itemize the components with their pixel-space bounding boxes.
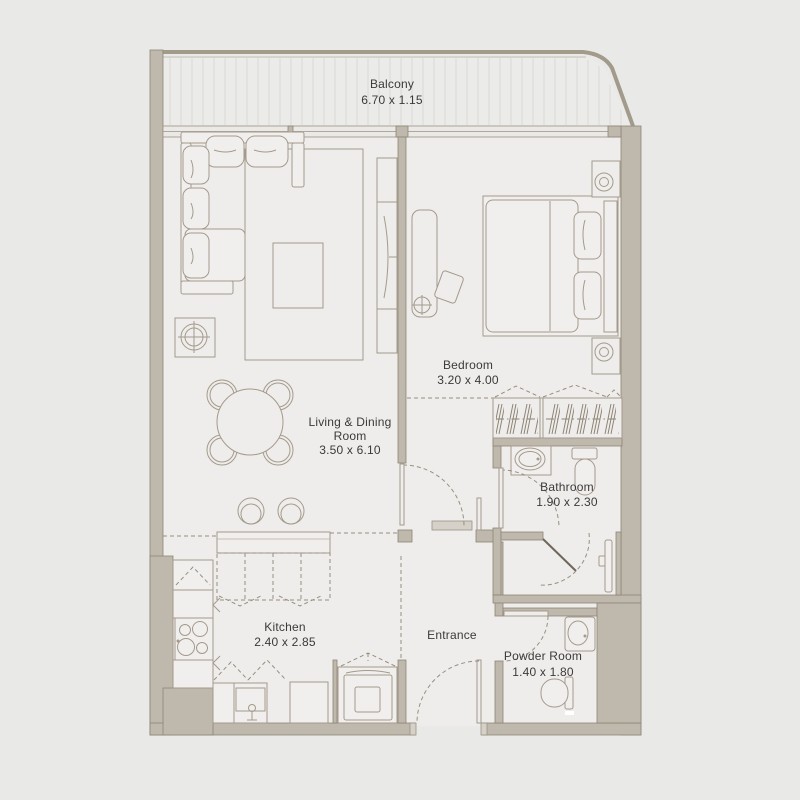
wall-bottom-right [482,723,641,735]
wardrobe-hangers-right [546,401,619,435]
powder-sink [565,617,595,651]
bathroom-dims: 1.90 x 2.30 [536,495,598,509]
wall-appliance-niche-left [333,660,337,723]
tv-console-cabinet [377,158,397,353]
corridor-door-leaf [400,464,404,525]
wall-corridor-bathroom-lower [493,528,501,595]
side-table [175,318,215,357]
bathroom-sink-drain [537,458,540,461]
living-dims: 3.50 x 6.10 [319,443,381,457]
kitchen-label: Kitchen [264,620,305,634]
floor-threshold-mark [565,711,574,715]
wall-shower-stub [501,532,543,540]
wall-corridor-entrance-left [398,530,412,542]
living-label-line2: Room [334,429,367,443]
floor-plan-drawing: Balcony 6.70 x 1.15 Bedroom 3.20 x 4.00 … [0,0,800,800]
sofa-cushion [183,188,209,229]
window-post-partition [396,126,408,137]
bed-pillow [574,212,601,259]
sofa-cushion [183,146,209,184]
kitchen-base-counter [290,682,328,723]
wall-protrusion [432,521,472,530]
powder-toilet [541,677,573,709]
coffee-table [273,243,323,308]
balcony-dims: 6.70 x 1.15 [361,93,423,107]
powder-door-leaf [504,611,548,616]
powder-sink-drain [584,635,587,638]
wardrobe-hangers-left [496,401,538,435]
bed-pillow [574,272,601,319]
entrance-label: Entrance [427,628,477,642]
living-label-line1: Living & Dining [308,415,391,429]
wall-block-right-of-powder [597,603,641,723]
shower-handle [599,556,605,566]
window-post-right [608,126,621,137]
powder-dims: 1.40 x 1.80 [512,665,574,679]
balcony-label: Balcony [370,77,414,91]
wall-bathroom-bottom [493,595,641,603]
bed-duvet [486,200,578,332]
wall-below-wardrobe [493,438,622,446]
bedroom-label: Bedroom [443,358,493,372]
wall-living-bedroom [398,137,406,463]
sofa-arm-right [292,143,304,187]
bathroom-door-leaf [499,468,503,528]
wall-kitchen-entrance-lower [398,660,406,723]
wall-kitchen-corner-block [163,688,213,735]
bathroom-label: Bathroom [540,480,594,494]
kitchen-island-counter [217,532,330,553]
wall-bathroom-right-strip [616,532,621,595]
kitchen-dims: 2.40 x 2.85 [254,635,316,649]
hall-door-leaf [477,498,481,530]
nightstand-bottom [592,338,620,374]
sofa-arm-bottom [181,281,233,294]
tv-console [377,158,397,353]
wall-entrance-powder-lower [495,661,503,723]
nightstand-top [592,161,620,197]
entry-door-leaf [477,660,481,723]
floor-plan-page: Balcony 6.70 x 1.15 Bedroom 3.20 x 4.00 … [0,0,800,800]
entry-door-post-left [410,723,416,735]
bedroom-dims: 3.20 x 4.00 [437,373,499,387]
powder-label: Powder Room [504,649,582,663]
cooktop [175,618,213,660]
entry-door-post-right [481,723,487,735]
bathroom-vanity [511,446,551,475]
sofa-cushion [183,233,209,278]
balcony-floor [163,57,630,126]
bed-headboard [604,201,617,332]
shower-panel [605,540,612,592]
cooktop-knob [177,640,180,643]
dining-table [217,389,283,455]
